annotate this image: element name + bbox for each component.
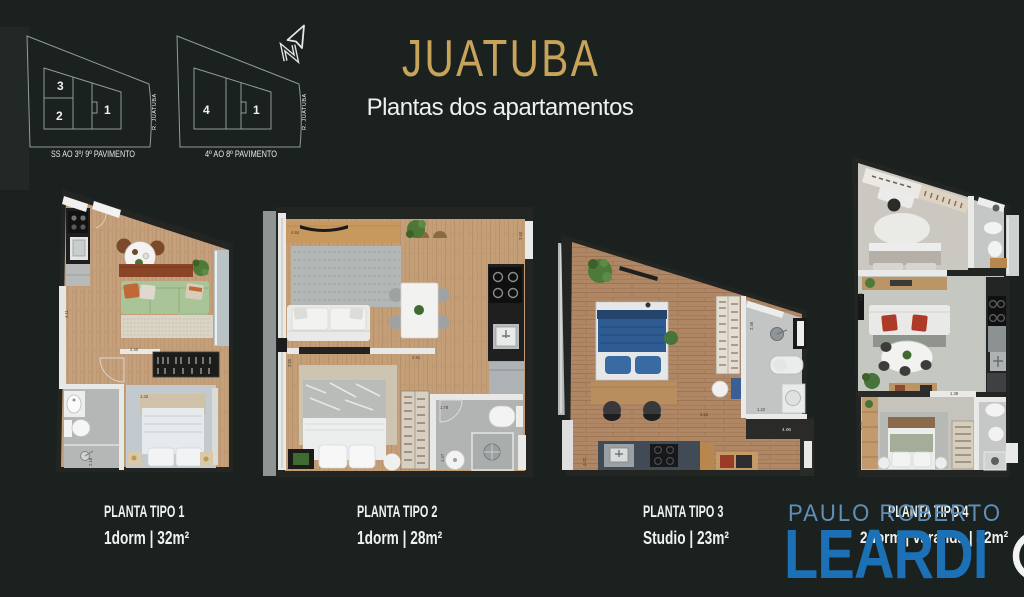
svg-text:2.55: 2.55 — [287, 358, 292, 367]
svg-text:2.18: 2.18 — [88, 457, 93, 466]
svg-text:1.78: 1.78 — [440, 405, 449, 410]
svg-text:4.06: 4.06 — [782, 427, 791, 432]
svg-text:2.96: 2.96 — [858, 421, 863, 430]
svg-text:2.40: 2.40 — [130, 347, 139, 352]
svg-text:4.02: 4.02 — [582, 457, 587, 466]
svg-text:4.11: 4.11 — [64, 309, 69, 318]
svg-text:2.46: 2.46 — [749, 321, 754, 330]
svg-text:2.91: 2.91 — [412, 355, 421, 360]
svg-text:4º AO 8º PAVIMENTO: 4º AO 8º PAVIMENTO — [205, 149, 277, 160]
svg-text:1.42: 1.42 — [140, 394, 149, 399]
svg-text:4.80: 4.80 — [858, 292, 863, 301]
svg-text:4.84: 4.84 — [291, 230, 300, 235]
svg-text:3: 3 — [57, 79, 64, 93]
svg-text:SS AO 3º/ 9º PAVIMENTO: SS AO 3º/ 9º PAVIMENTO — [51, 149, 135, 160]
svg-text:3.60: 3.60 — [518, 231, 523, 240]
svg-text:1.38: 1.38 — [950, 391, 959, 396]
svg-text:1.47: 1.47 — [440, 453, 445, 462]
svg-text:3.52: 3.52 — [700, 412, 709, 417]
svg-text:1.22: 1.22 — [757, 407, 766, 412]
